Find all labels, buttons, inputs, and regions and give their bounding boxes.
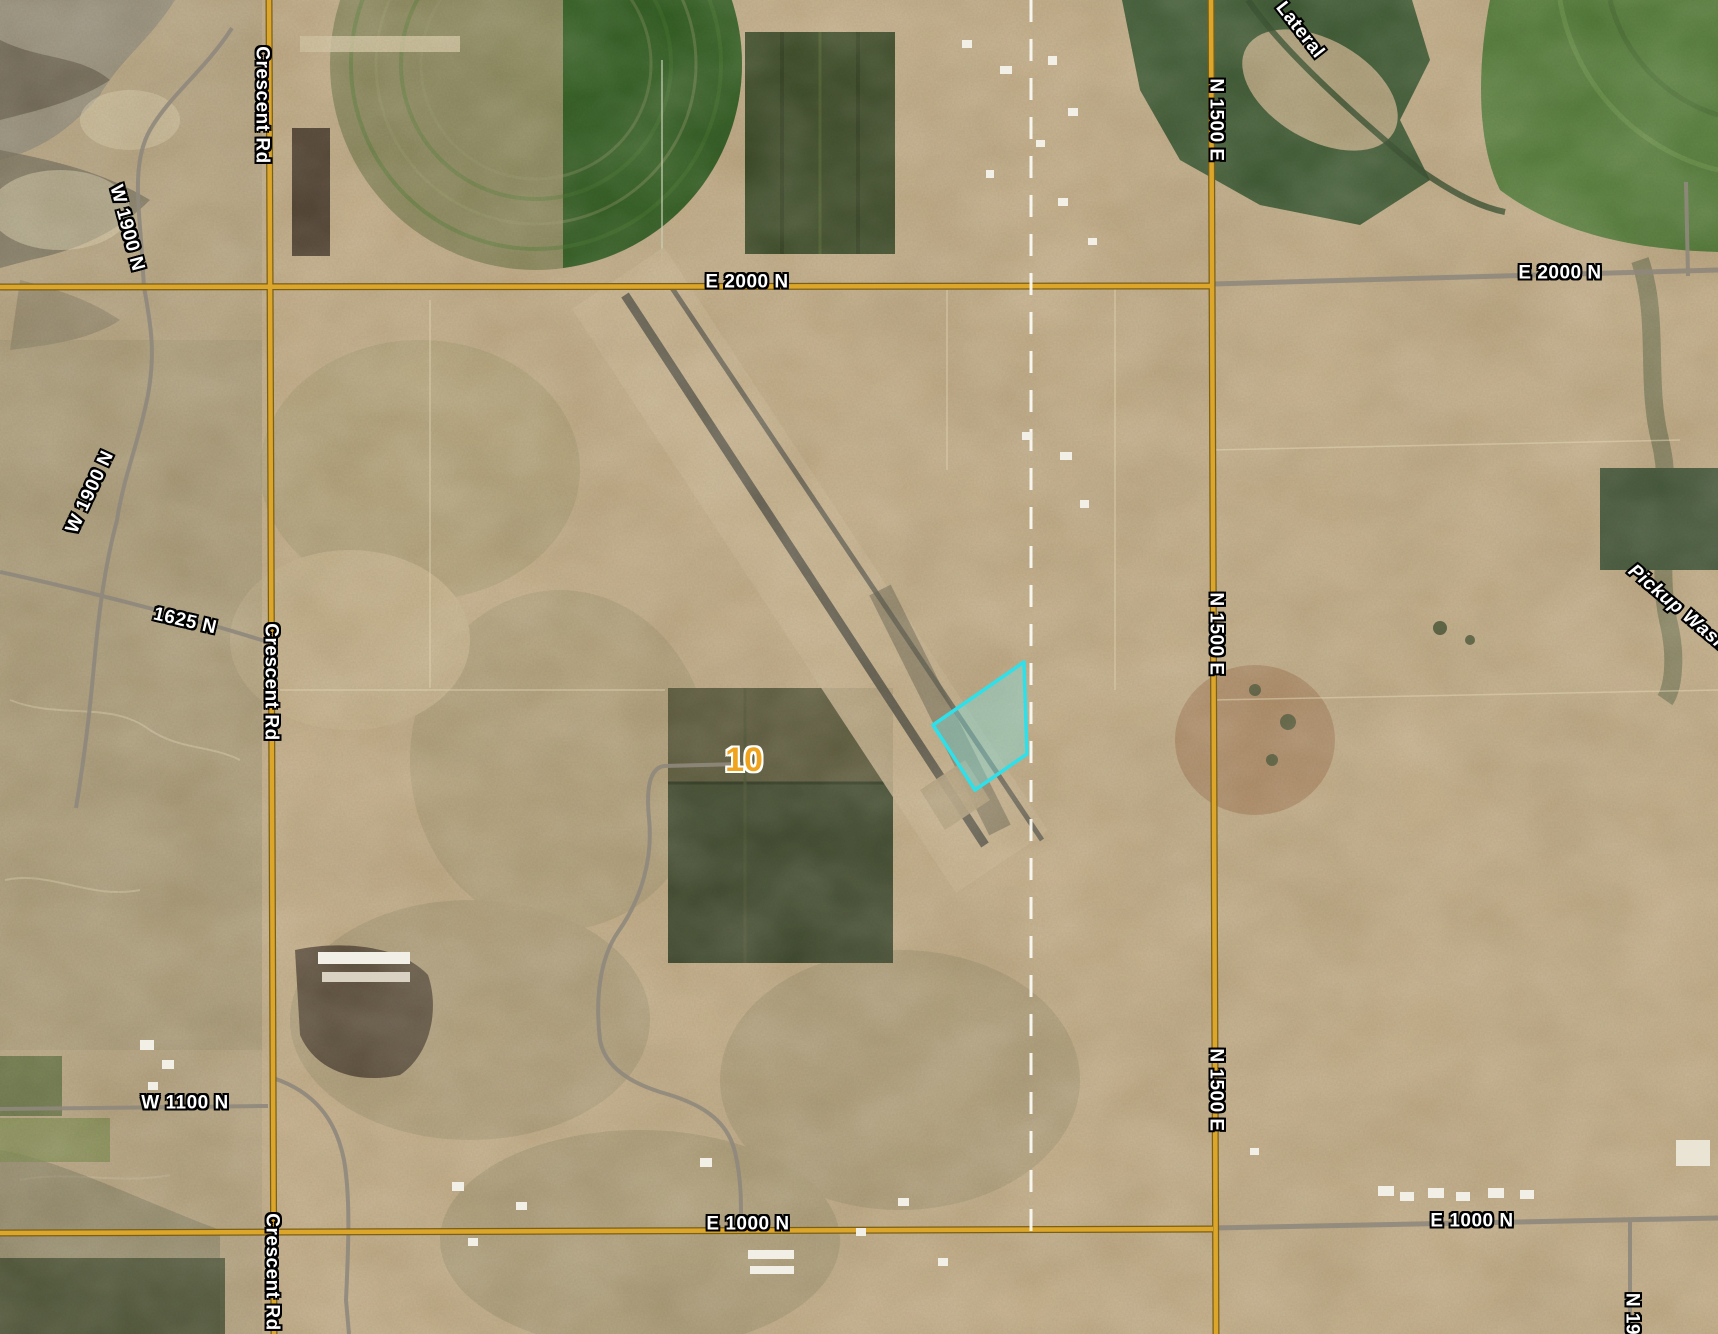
road-label-n-1500-e-mid: N 1500 E	[1207, 592, 1226, 675]
road-label-e-1000-n-right: E 1000 N	[1430, 1212, 1513, 1231]
map-canvas[interactable]: Crescent Rd W 1900 N W 1900 N 1625 N Cre…	[0, 0, 1718, 1334]
road-label-e-2000-n-center: E 2000 N	[705, 273, 788, 292]
highway-10-marker: 10	[725, 743, 763, 777]
road-label-e-1000-n-center: E 1000 N	[706, 1215, 789, 1234]
road-label-crescent-rd-bottom: Crescent Rd	[263, 1213, 282, 1330]
road-label-e-2000-n-right: E 2000 N	[1518, 264, 1601, 283]
aerial-imagery	[0, 0, 1718, 1334]
terrain-texture-fine	[0, 0, 1718, 1334]
road-label-n-1500-e-bottom: N 1500 E	[1207, 1048, 1226, 1131]
road-label-n-19-partial: N 19	[1623, 1293, 1642, 1334]
road-label-crescent-rd-top: Crescent Rd	[253, 46, 272, 163]
road-label-n-1500-e-top: N 1500 E	[1207, 78, 1226, 161]
road-label-w-1100-n: W 1100 N	[141, 1094, 228, 1113]
road-label-crescent-rd-mid: Crescent Rd	[262, 623, 281, 740]
